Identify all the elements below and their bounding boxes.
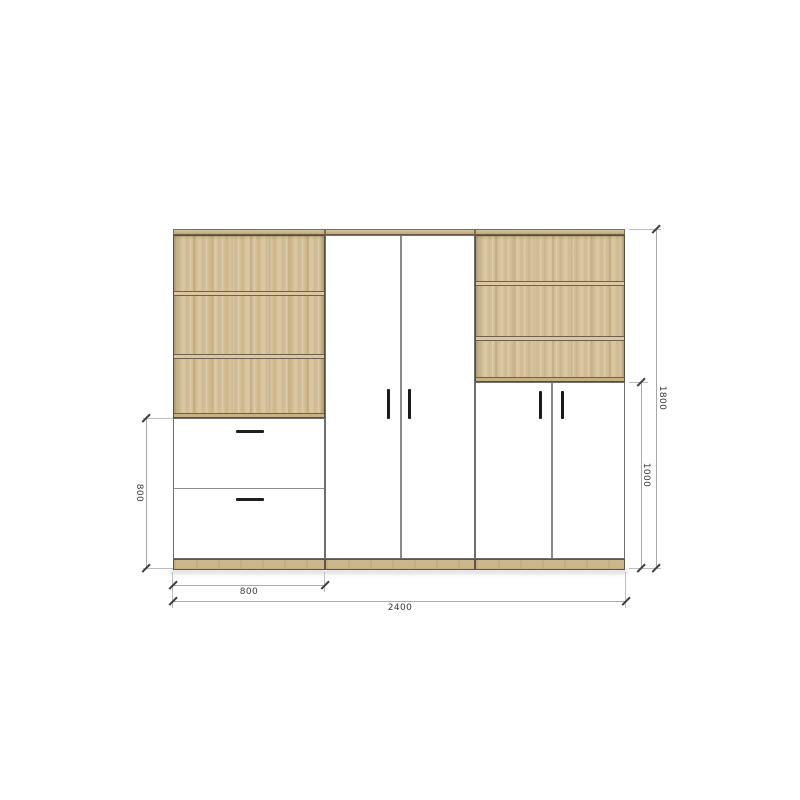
right-plinth <box>475 559 625 570</box>
right-shelf-divider-2 <box>476 336 624 341</box>
dim-right-lower-height-label: 1000 <box>637 461 655 489</box>
right-right-door-handle <box>561 391 564 419</box>
left-upper-cabinet <box>173 235 325 418</box>
right-lower-doors <box>475 382 625 559</box>
middle-right-door-handle <box>408 389 411 419</box>
right-shelf-divider-1 <box>476 281 624 286</box>
drawer-2-handle <box>236 498 264 501</box>
drawer-divider <box>174 488 324 489</box>
right-cabinet-bottom-edge <box>476 377 624 381</box>
extension-line <box>324 572 325 592</box>
dim-left-lower-height-label: 800 <box>130 481 148 505</box>
middle-left-door-handle <box>387 389 390 419</box>
right-left-door-handle <box>539 391 542 419</box>
dim-total-width-label: 2400 <box>375 602 425 613</box>
left-shelf-divider-2 <box>174 354 324 359</box>
middle-plinth <box>325 559 475 570</box>
floor-shadow <box>170 570 628 576</box>
drawing-canvas: 800 1800 1000 800 2400 <box>0 0 800 800</box>
left-cabinet-bottom-edge <box>174 413 324 417</box>
drawer-1-handle <box>236 430 264 433</box>
extension-line <box>143 568 173 569</box>
right-door-seam <box>551 383 553 558</box>
middle-wardrobe-doors <box>325 235 475 559</box>
left-shelf-divider-1 <box>174 291 324 296</box>
right-upper-cabinet <box>475 235 625 382</box>
middle-door-seam <box>400 236 402 558</box>
dim-left-section-width-label: 800 <box>229 586 269 597</box>
dim-total-height-label: 1800 <box>653 384 671 412</box>
left-drawer-unit <box>173 418 325 559</box>
extension-line <box>143 418 173 419</box>
cabinet-elevation <box>173 229 625 570</box>
left-plinth <box>173 559 325 570</box>
